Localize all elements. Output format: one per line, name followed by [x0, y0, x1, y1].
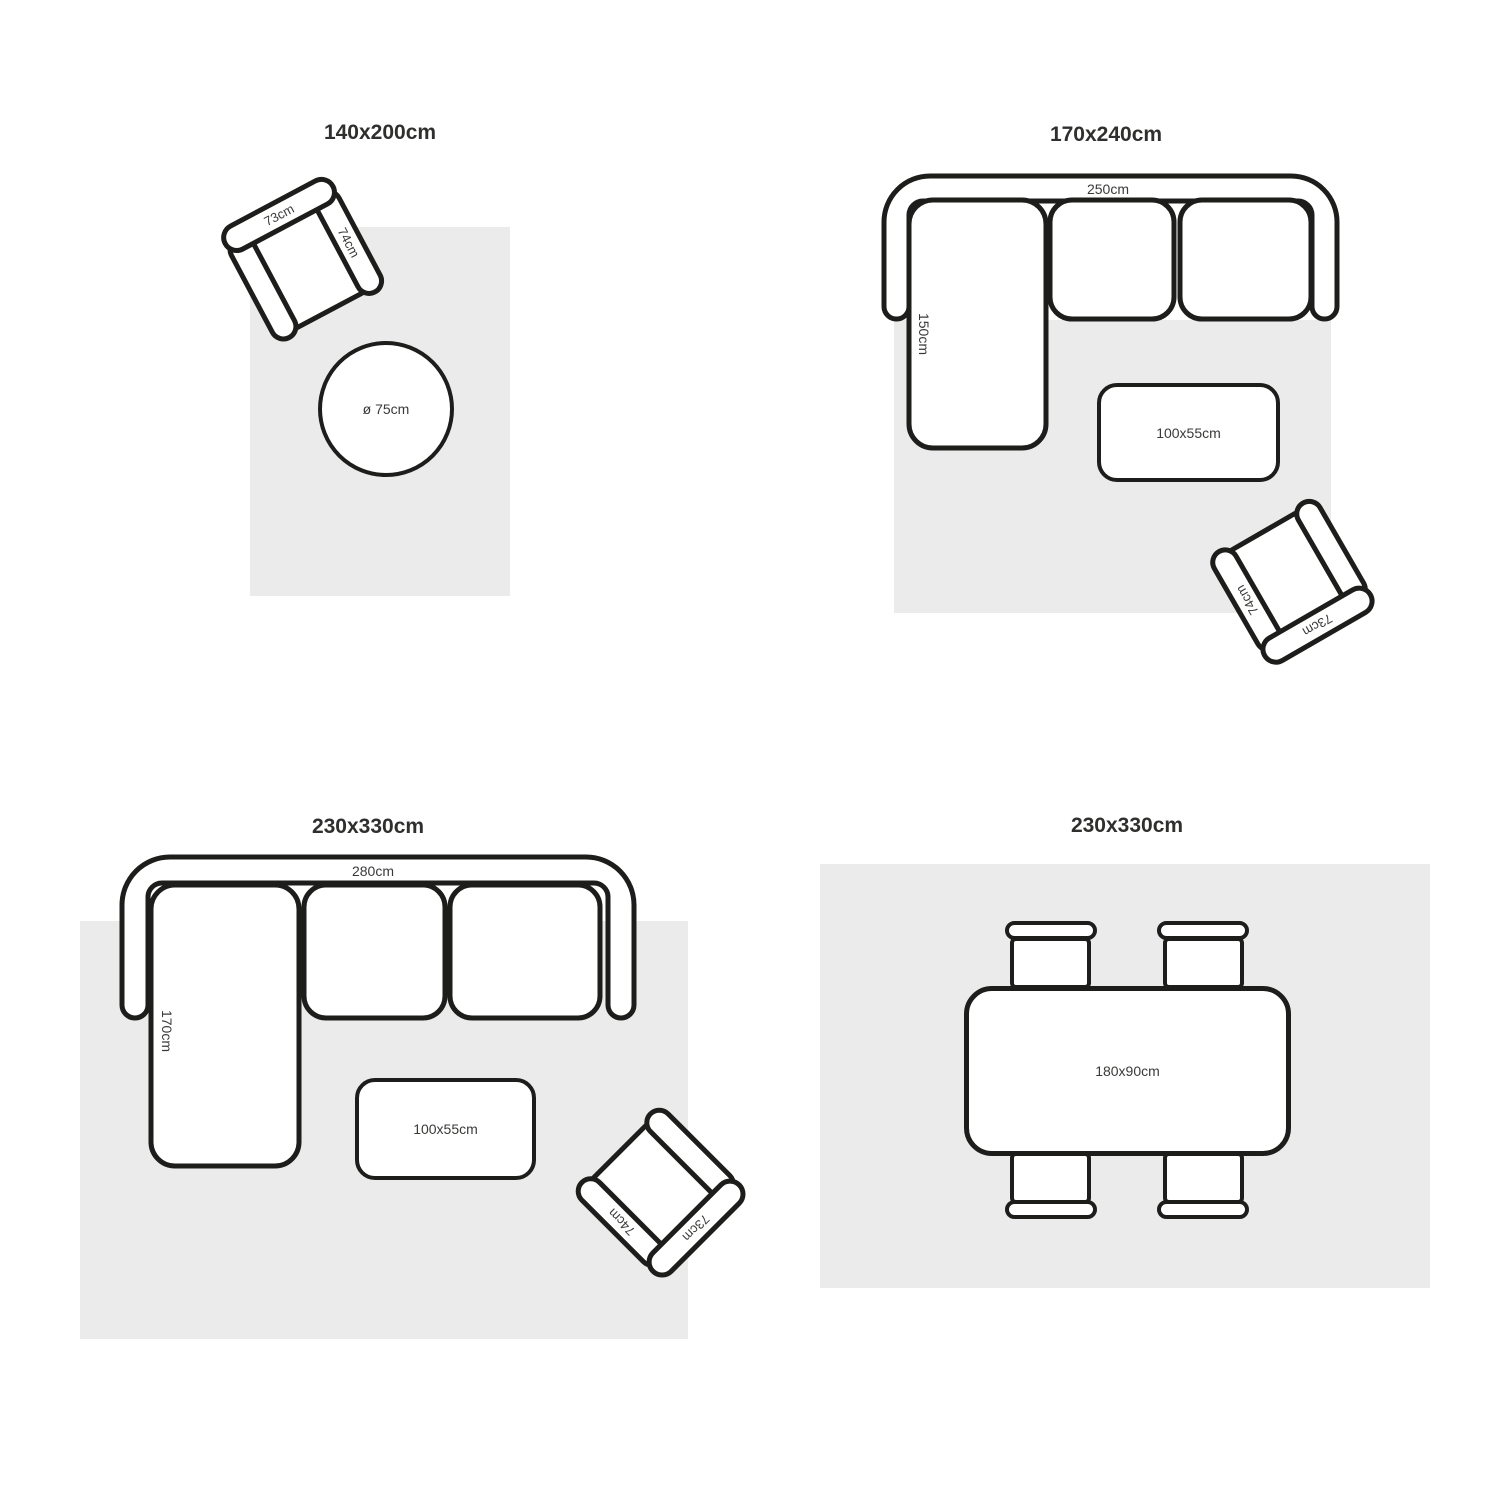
sofa-cushion: [304, 885, 445, 1018]
chair-seat: [1010, 937, 1091, 989]
page-title: 230x330cm: [312, 815, 424, 839]
coffee-table-dimension: 100x55cm: [1156, 425, 1221, 441]
chair-seat: [1163, 937, 1244, 989]
sofa-width-dimension: 250cm: [1087, 181, 1129, 197]
sofa-cushion: [450, 885, 600, 1018]
chair-back: [1157, 1200, 1249, 1219]
chair-seat: [1010, 1152, 1091, 1204]
coffee-table-icon: 100x55cm: [355, 1078, 536, 1180]
chair-back: [1005, 921, 1097, 940]
page-title: 230x330cm: [1071, 814, 1183, 838]
page-title: 140x200cm: [324, 121, 436, 145]
coffee-table-dimension: 100x55cm: [413, 1121, 478, 1137]
sofa-cushion: [1050, 200, 1174, 319]
chair-back: [1157, 921, 1249, 940]
page-title: 170x240cm: [1050, 123, 1162, 147]
sofa-chaise-dimension: 170cm: [159, 1010, 175, 1052]
dining-table-dimension: 180x90cm: [1095, 1063, 1160, 1079]
sofa-chaise-dimension: 150cm: [916, 313, 932, 355]
round-table-icon: ø 75cm: [318, 341, 454, 477]
sofa-cushion: [1180, 200, 1311, 319]
sofa-width-dimension: 280cm: [352, 863, 394, 879]
chair-seat: [1163, 1152, 1244, 1204]
chair-back: [1005, 1200, 1097, 1219]
round-table-dimension: ø 75cm: [363, 401, 410, 417]
rug-size-guide: 140x200cm 73cm 74cm ø 75cm 170x240cm 250…: [0, 0, 1500, 1500]
coffee-table-icon: 100x55cm: [1097, 383, 1280, 482]
dining-table-icon: 180x90cm: [964, 986, 1291, 1156]
